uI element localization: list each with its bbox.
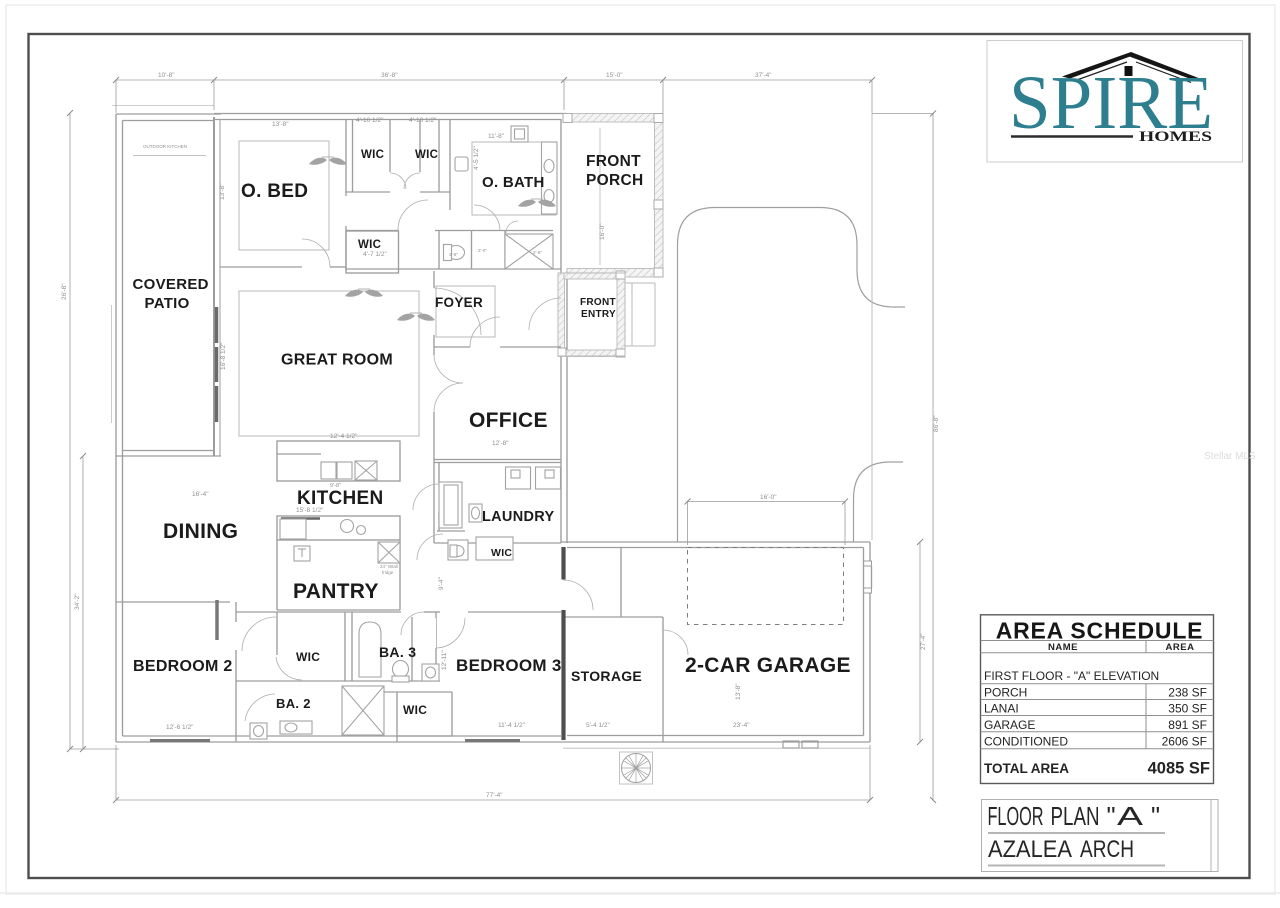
svg-text:NAME: NAME xyxy=(1048,642,1078,653)
svg-text:4'-10 1/2": 4'-10 1/2" xyxy=(409,117,437,124)
svg-text:13'-8": 13'-8" xyxy=(219,183,226,200)
svg-text:AREA SCHEDULE: AREA SCHEDULE xyxy=(996,618,1204,644)
svg-text:PORCH: PORCH xyxy=(586,172,643,189)
svg-text:FRONT: FRONT xyxy=(586,153,641,170)
svg-text:TOTAL AREA: TOTAL AREA xyxy=(984,761,1069,776)
svg-text:BA. 3: BA. 3 xyxy=(379,644,416,660)
svg-text:34'-2": 34'-2" xyxy=(74,593,81,610)
svg-text:WIC: WIC xyxy=(415,149,438,161)
svg-text:4'-5 1/2": 4'-5 1/2" xyxy=(473,146,480,170)
svg-text:WIC: WIC xyxy=(361,149,384,161)
svg-text:WIC: WIC xyxy=(403,703,427,717)
svg-text:": " xyxy=(1107,803,1116,831)
svg-text:4'-10 1/2": 4'-10 1/2" xyxy=(356,117,384,124)
svg-text:BEDROOM 3: BEDROOM 3 xyxy=(456,656,562,675)
svg-text:DINING: DINING xyxy=(163,520,238,543)
svg-text:5'-4 1/2": 5'-4 1/2" xyxy=(586,722,610,729)
svg-text:24" Wtall: 24" Wtall xyxy=(380,564,398,569)
svg-text:FIRST FLOOR - "A" ELEVATION: FIRST FLOOR - "A" ELEVATION xyxy=(984,669,1159,683)
svg-text:COVERED: COVERED xyxy=(133,276,209,293)
svg-text:LAUNDRY: LAUNDRY xyxy=(482,509,554,525)
svg-text:12'-11": 12'-11" xyxy=(441,650,448,670)
svg-text:16'-0": 16'-0" xyxy=(760,494,777,501)
svg-text:26'-8": 26'-8" xyxy=(61,283,68,300)
svg-text:16'-0": 16'-0" xyxy=(599,223,606,240)
svg-text:FOYER: FOYER xyxy=(435,295,483,310)
svg-text:3'-0": 3'-0" xyxy=(478,248,487,253)
svg-text:": " xyxy=(1151,803,1160,831)
svg-text:A: A xyxy=(1117,803,1143,831)
svg-text:16'-4": 16'-4" xyxy=(192,491,209,498)
svg-text:86'-8": 86'-8" xyxy=(933,415,940,432)
svg-text:11'-8": 11'-8" xyxy=(488,133,505,140)
svg-text:GARAGE: GARAGE xyxy=(984,718,1035,732)
svg-text:2606 SF: 2606 SF xyxy=(1162,735,1207,749)
svg-text:36'-8": 36'-8" xyxy=(381,72,398,79)
svg-text:37'-4": 37'-4" xyxy=(755,72,772,79)
svg-text:12'-8": 12'-8" xyxy=(492,440,509,447)
svg-text:238 SF: 238 SF xyxy=(1168,686,1207,700)
svg-text:WIC: WIC xyxy=(358,239,381,251)
svg-text:BA. 2: BA. 2 xyxy=(276,696,311,711)
svg-text:FRONT: FRONT xyxy=(580,297,616,308)
svg-text:2'-8": 2'-8" xyxy=(449,252,458,257)
svg-text:11'-4 1/2": 11'-4 1/2" xyxy=(498,722,526,729)
svg-text:13'-8": 13'-8" xyxy=(272,121,289,128)
svg-text:O. BED: O. BED xyxy=(241,181,308,202)
svg-text:fridge: fridge xyxy=(382,570,394,575)
svg-text:PORCH: PORCH xyxy=(984,686,1027,700)
svg-text:12'-6 1/2": 12'-6 1/2" xyxy=(166,724,194,731)
svg-text:77'-4": 77'-4" xyxy=(486,792,503,799)
svg-text:OUTDOOR KITCHEN: OUTDOOR KITCHEN xyxy=(143,144,187,149)
svg-text:10'-8": 10'-8" xyxy=(158,72,175,79)
svg-text:PATIO: PATIO xyxy=(145,295,190,312)
svg-text:12'-4 1/2": 12'-4 1/2" xyxy=(330,433,358,440)
svg-text:WIC: WIC xyxy=(296,650,320,664)
svg-text:PANTRY: PANTRY xyxy=(293,580,379,603)
svg-text:PLAN: PLAN xyxy=(1051,803,1100,831)
svg-text:15'-0": 15'-0" xyxy=(606,72,623,79)
svg-text:KITCHEN: KITCHEN xyxy=(297,488,384,509)
svg-text:ENTRY: ENTRY xyxy=(581,309,616,320)
svg-text:4'-7 1/2": 4'-7 1/2" xyxy=(363,251,387,258)
svg-text:O. BATH: O. BATH xyxy=(482,174,545,191)
svg-text:23'-4": 23'-4" xyxy=(733,722,750,729)
svg-text:13'-8": 13'-8" xyxy=(735,683,742,700)
svg-text:AZALEA: AZALEA xyxy=(988,836,1073,863)
svg-text:891 SF: 891 SF xyxy=(1168,718,1207,732)
svg-text:ARCH: ARCH xyxy=(1080,836,1134,863)
svg-text:350 SF: 350 SF xyxy=(1168,702,1207,716)
svg-text:BEDROOM 2: BEDROOM 2 xyxy=(133,658,233,675)
svg-text:WIC: WIC xyxy=(491,547,512,559)
svg-text:16'-8 1/2": 16'-8 1/2" xyxy=(220,342,227,370)
svg-text:4085 SF: 4085 SF xyxy=(1148,760,1210,778)
svg-text:2-CAR GARAGE: 2-CAR GARAGE xyxy=(685,654,851,677)
svg-text:GREAT ROOM: GREAT ROOM xyxy=(281,352,393,369)
svg-text:CONDITIONED: CONDITIONED xyxy=(984,735,1068,749)
svg-text:OFFICE: OFFICE xyxy=(469,409,548,432)
svg-text:AREA: AREA xyxy=(1166,642,1195,653)
svg-text:FLOOR: FLOOR xyxy=(988,803,1044,831)
svg-text:LANAI: LANAI xyxy=(984,702,1019,716)
svg-text:STORAGE: STORAGE xyxy=(571,668,642,684)
svg-text:9'-4": 9'-4" xyxy=(438,576,445,590)
svg-text:2'-8": 2'-8" xyxy=(533,250,542,255)
svg-text:27'-4": 27'-4" xyxy=(920,633,927,650)
svg-text:HOMES: HOMES xyxy=(1139,129,1212,145)
svg-text:Stellar MLS: Stellar MLS xyxy=(1204,451,1256,462)
